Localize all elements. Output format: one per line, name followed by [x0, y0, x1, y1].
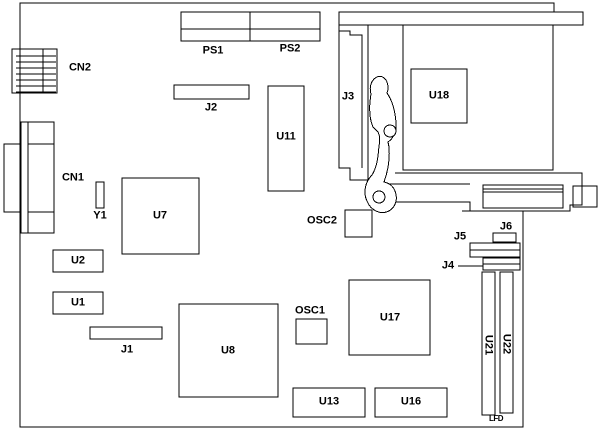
label-u2: U2 — [71, 256, 85, 267]
label-j2: J2 — [205, 103, 217, 114]
label-u11: U11 — [276, 132, 296, 143]
socket-top-bar — [339, 12, 583, 25]
edge-connector-tab — [573, 186, 597, 207]
connector-j6 — [493, 233, 516, 242]
label-u16: U16 — [401, 397, 421, 408]
connector-cn1 — [21, 122, 54, 233]
label-u18: U18 — [429, 91, 449, 102]
cn1-detail-lines — [28, 122, 54, 233]
label-osc2: OSC2 — [307, 216, 337, 227]
label-u22: U22 — [501, 334, 512, 354]
label-u13: U13 — [319, 397, 339, 408]
label-j1: J1 — [121, 345, 133, 356]
label-j4: J4 — [442, 261, 454, 272]
j3-socket-frame — [339, 25, 368, 180]
connector-j2 — [174, 85, 249, 99]
lever-pivot-hole-top — [384, 125, 396, 137]
label-u1: U1 — [71, 298, 85, 309]
label-u8: U8 — [221, 346, 235, 357]
label-lfd: LFD — [489, 415, 503, 423]
label-j3: J3 — [342, 92, 354, 103]
crystal-y1 — [96, 182, 104, 208]
label-cn2: CN2 — [69, 63, 91, 74]
edge-connector-block — [483, 185, 563, 208]
label-osc1: OSC1 — [295, 306, 325, 317]
ps-header-dividers — [181, 12, 320, 41]
cn1-flange — [4, 144, 21, 212]
label-j6: J6 — [500, 222, 512, 233]
pcb-layout-diagram: CN2 CN1 Y1 U7 U2 U1 J1 U8 J2 U11 PS1 PS2… — [0, 0, 600, 431]
label-u21: U21 — [483, 335, 494, 355]
card-socket-body — [403, 25, 553, 170]
label-u17: U17 — [380, 313, 400, 324]
label-ps2: PS2 — [280, 44, 301, 55]
label-u7: U7 — [153, 211, 167, 222]
label-y1: Y1 — [93, 211, 106, 222]
label-ps1: PS1 — [203, 46, 224, 57]
oscillator-osc1 — [296, 319, 327, 344]
label-cn1: CN1 — [62, 173, 84, 184]
label-j5: J5 — [454, 232, 466, 243]
lever-pivot-hole-bottom — [373, 191, 385, 203]
connector-j1 — [90, 327, 162, 339]
ejector-band-bottom — [390, 202, 563, 211]
oscillator-osc2 — [345, 210, 372, 237]
cn2-pin-lines — [16, 49, 56, 93]
edge-connector-lines — [483, 189, 563, 192]
